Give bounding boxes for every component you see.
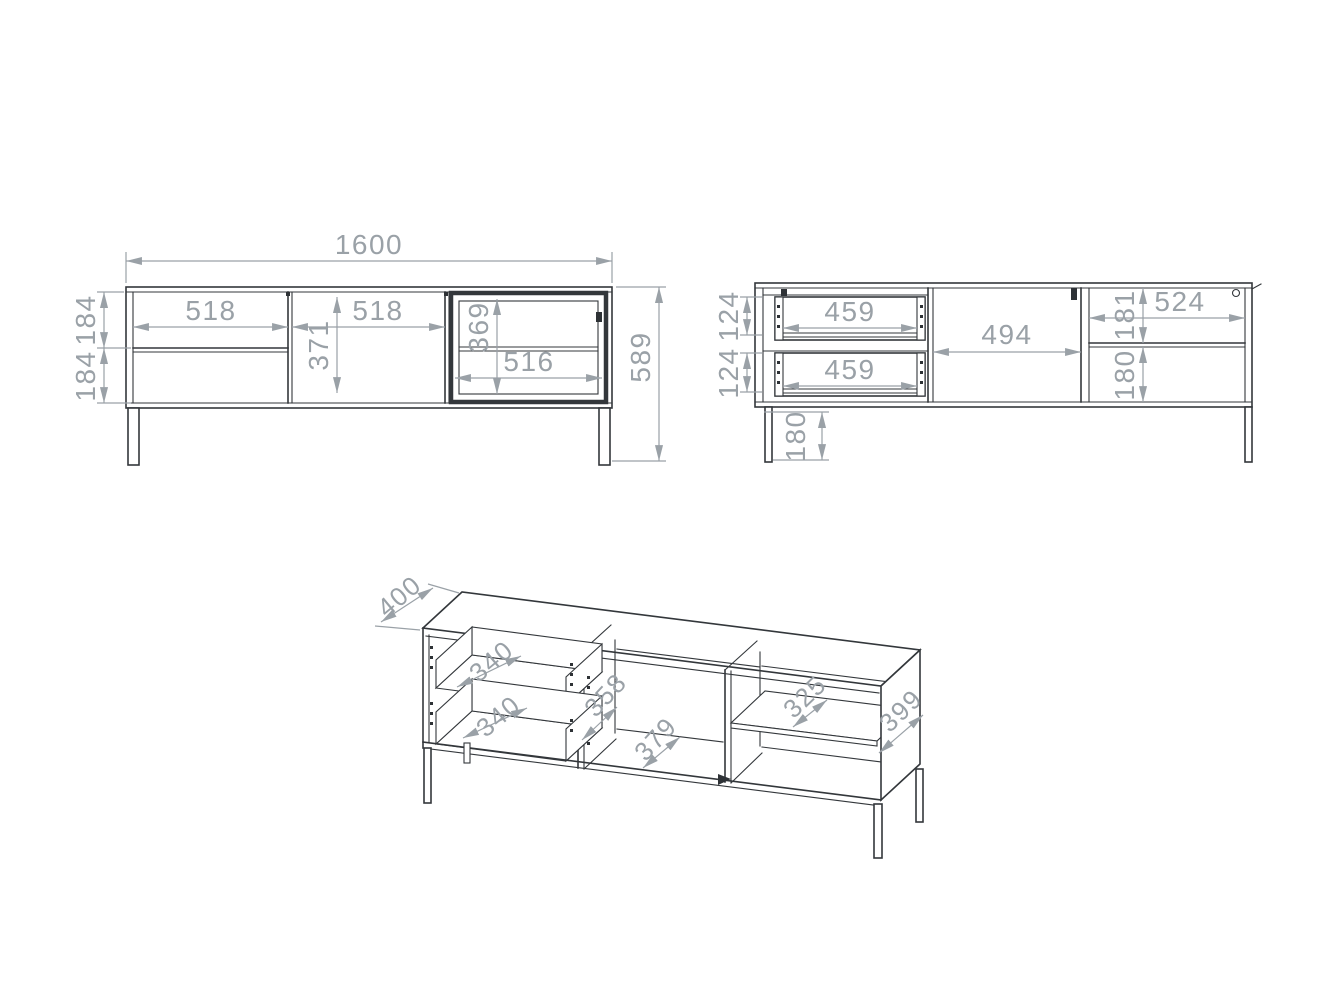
technical-drawing: 1600 589 184 184 518 518 371 — [0, 0, 1341, 1005]
iso-back-left-leg — [464, 743, 470, 763]
dim-top-drawer-width: 459 — [824, 296, 875, 327]
iso-front-right-leg — [874, 804, 882, 858]
dim-middle-section-height: 371 — [303, 319, 334, 370]
dim-glass-door-height: 369 — [463, 301, 494, 352]
cam-lock-mark — [1233, 290, 1240, 297]
dim-depth: 400 — [371, 569, 427, 623]
internal-left-leg — [765, 407, 772, 462]
dim-middle-section-width: 518 — [352, 295, 403, 326]
dim-top-drawer-box-height: 124 — [713, 290, 744, 341]
front-view-dimensions: 1600 589 184 184 518 518 371 — [70, 229, 666, 461]
iso-front-left-leg — [424, 748, 431, 803]
door-handle — [596, 312, 602, 322]
hinge-mark-left — [781, 289, 787, 296]
internal-view: 124 124 459 459 494 524 181 180 — [713, 283, 1261, 462]
front-left-leg — [128, 408, 139, 465]
dim-upper-shelf-height: 181 — [1109, 289, 1140, 340]
dim-bottom-drawer-box-height: 124 — [713, 347, 744, 398]
dim-bottom-drawer-width: 459 — [824, 354, 875, 385]
internal-right-leg — [1245, 407, 1252, 462]
dim-leg-height: 180 — [780, 410, 811, 461]
dim-middle-floor-depth: 379 — [628, 711, 683, 766]
front-view: 1600 589 184 184 518 518 371 — [70, 229, 666, 465]
iso-view: 400 340 340 358 379 325 399 — [371, 569, 928, 858]
front-right-leg — [599, 408, 610, 465]
dim-total-height: 589 — [625, 331, 656, 382]
dim-left-section-width: 518 — [185, 295, 236, 326]
dim-lower-shelf-height: 180 — [1109, 349, 1140, 400]
dim-middle-width: 494 — [981, 319, 1032, 350]
dim-total-width: 1600 — [335, 229, 403, 260]
dim-glass-door-width: 516 — [503, 346, 554, 377]
dim-right-section-width: 524 — [1154, 286, 1205, 317]
iso-back-right-leg — [916, 769, 923, 822]
dim-bottom-drawer-height: 184 — [70, 350, 101, 401]
hinge-mark-middle — [1071, 288, 1077, 300]
dim-top-drawer-height: 184 — [70, 294, 101, 345]
